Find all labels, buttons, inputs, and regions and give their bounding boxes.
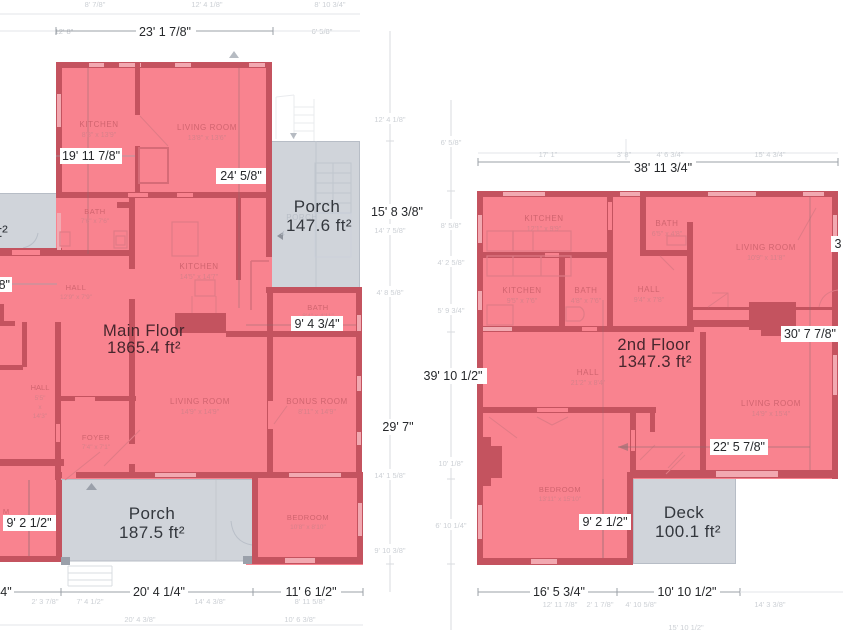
svg-text:14' 3 3/8": 14' 3 3/8" xyxy=(754,600,786,609)
svg-text:14' 7 5/8": 14' 7 5/8" xyxy=(374,226,406,235)
svg-text:9' 10 3/8": 9' 10 3/8" xyxy=(374,546,406,555)
svg-text:5'5": 5'5" xyxy=(35,395,46,402)
svg-text:BATH: BATH xyxy=(655,219,678,228)
svg-text:8' 5/8": 8' 5/8" xyxy=(441,221,462,230)
svg-text:24' 5/8": 24' 5/8" xyxy=(220,169,262,183)
svg-text:12' 11 7/8": 12' 11 7/8" xyxy=(543,600,578,609)
svg-text:BONUS ROOM: BONUS ROOM xyxy=(286,397,348,406)
svg-text:10' 1/8": 10' 1/8" xyxy=(439,459,464,468)
svg-text:4": 4" xyxy=(0,585,11,599)
svg-text:10'8" x 8'10": 10'8" x 8'10" xyxy=(290,524,326,531)
svg-text:BATH: BATH xyxy=(307,303,328,312)
svg-text:13'11" x 15'10": 13'11" x 15'10" xyxy=(539,496,582,503)
svg-text:KITCHEN: KITCHEN xyxy=(79,120,118,129)
svg-text:15' 8 3/8": 15' 8 3/8" xyxy=(371,205,423,219)
svg-text:20' 4 3/8": 20' 4 3/8" xyxy=(124,615,156,624)
svg-text:29' 7": 29' 7" xyxy=(382,420,413,434)
svg-text:3' 8": 3' 8" xyxy=(617,150,632,159)
svg-text:3: 3 xyxy=(835,237,842,251)
svg-text:13'8" x 13'6": 13'8" x 13'6" xyxy=(188,135,227,142)
svg-text:15' 10 1/2": 15' 10 1/2" xyxy=(668,623,704,632)
svg-text:6' 10 1/4": 6' 10 1/4" xyxy=(435,521,467,530)
svg-text:10'9" x 11'8": 10'9" x 11'8" xyxy=(747,255,785,262)
svg-text:KITCHEN: KITCHEN xyxy=(179,262,218,271)
svg-text:Porch: Porch xyxy=(129,504,175,523)
svg-text:12' 4 1/8": 12' 4 1/8" xyxy=(191,0,223,9)
svg-text:HALL: HALL xyxy=(638,285,660,294)
svg-text:5' 9 3/4": 5' 9 3/4" xyxy=(437,306,464,315)
svg-text:7'4" x 7'1": 7'4" x 7'1" xyxy=(82,444,111,451)
svg-text:16' 5 3/4": 16' 5 3/4" xyxy=(533,585,585,599)
svg-text:KITCHEN: KITCHEN xyxy=(502,286,541,295)
svg-text:7' 4 1/2": 7' 4 1/2" xyxy=(76,597,103,606)
svg-text:14'5" x 14'7": 14'5" x 14'7" xyxy=(180,274,219,281)
svg-text:4' 2 5/8": 4' 2 5/8" xyxy=(437,258,464,267)
svg-text:8' 11 5/8": 8' 11 5/8" xyxy=(295,597,326,606)
svg-text:14' 4 3/8": 14' 4 3/8" xyxy=(194,597,226,606)
svg-text:6' 5/8": 6' 5/8" xyxy=(441,138,462,147)
svg-text:8'8" x 13'9": 8'8" x 13'9" xyxy=(82,132,117,139)
svg-text:8' 10 3/4": 8' 10 3/4" xyxy=(314,0,346,9)
svg-text:LIVING ROOM: LIVING ROOM xyxy=(170,397,230,406)
svg-text:FOYER: FOYER xyxy=(82,433,110,442)
svg-text:2' 1 7/8": 2' 1 7/8" xyxy=(586,600,613,609)
svg-text:1347.3 ft²: 1347.3 ft² xyxy=(618,353,692,371)
svg-text:4'8" x 7'6": 4'8" x 7'6" xyxy=(571,298,602,305)
svg-text:4' 6 3/4": 4' 6 3/4" xyxy=(656,150,683,159)
svg-text:187.5 ft²: 187.5 ft² xyxy=(119,523,185,542)
svg-text:6'5" x 4'8": 6'5" x 4'8" xyxy=(652,231,683,238)
svg-text:BATH: BATH xyxy=(574,286,597,295)
svg-text:14'9" x 14'9": 14'9" x 14'9" xyxy=(181,409,220,416)
svg-text:Deck: Deck xyxy=(664,503,704,522)
svg-text:15' 4 3/4": 15' 4 3/4" xyxy=(754,150,786,159)
svg-text:KITCHEN: KITCHEN xyxy=(524,214,563,223)
svg-text:100.1 ft²: 100.1 ft² xyxy=(655,522,721,541)
svg-text:2nd Floor: 2nd Floor xyxy=(617,336,690,354)
svg-text:2' 3 7/8": 2' 3 7/8" xyxy=(31,597,58,606)
svg-text:8' 7/8": 8' 7/8" xyxy=(85,0,106,9)
svg-text:9'5" x 7'6": 9'5" x 7'6" xyxy=(507,298,538,305)
svg-text:9' 2 1/2": 9' 2 1/2" xyxy=(582,515,627,529)
svg-text:t²: t² xyxy=(0,222,8,241)
svg-text:7'6" x 7'6": 7'6" x 7'6" xyxy=(81,218,110,225)
svg-text:LIVING ROOM: LIVING ROOM xyxy=(177,123,237,132)
svg-text:Main Floor: Main Floor xyxy=(103,322,185,340)
svg-text:30' 7 7/8": 30' 7 7/8" xyxy=(784,327,836,341)
svg-text:M: M xyxy=(3,507,9,516)
svg-text:4' 10 5/8": 4' 10 5/8" xyxy=(625,600,657,609)
svg-text:LIVING ROOM: LIVING ROOM xyxy=(736,243,796,252)
svg-text:Porch: Porch xyxy=(294,197,340,216)
svg-text:19' 11 7/8": 19' 11 7/8" xyxy=(62,149,120,163)
svg-text:9' 2 1/2": 9' 2 1/2" xyxy=(6,516,51,530)
svg-text:20' 4 1/4": 20' 4 1/4" xyxy=(133,585,185,599)
svg-text:38' 11 3/4": 38' 11 3/4" xyxy=(634,161,692,175)
svg-text:12'9" x 7'9": 12'9" x 7'9" xyxy=(60,294,93,301)
svg-text:BATH: BATH xyxy=(84,207,105,216)
svg-text:10' 10 1/2": 10' 10 1/2" xyxy=(658,585,717,599)
svg-text:14'9" x 15'4": 14'9" x 15'4" xyxy=(752,411,791,418)
svg-text:147.6 ft²: 147.6 ft² xyxy=(286,216,352,235)
svg-text:HALL: HALL xyxy=(577,368,599,377)
svg-text:39' 10 1/2": 39' 10 1/2" xyxy=(424,369,483,383)
svg-text:4: 4 xyxy=(281,231,285,238)
svg-text:HALL: HALL xyxy=(31,383,50,392)
svg-text:BEDROOM: BEDROOM xyxy=(287,513,329,522)
svg-text:8": 8" xyxy=(0,278,10,292)
svg-text:23' 1 7/8": 23' 1 7/8" xyxy=(139,25,191,39)
svg-text:4' 8 5/8": 4' 8 5/8" xyxy=(376,288,403,297)
svg-text:21'2" x 8'4": 21'2" x 8'4" xyxy=(571,380,606,387)
svg-text:BEDROOM: BEDROOM xyxy=(539,485,581,494)
svg-text:10' 6 3/8": 10' 6 3/8" xyxy=(284,615,316,624)
svg-text:1865.4 ft²: 1865.4 ft² xyxy=(107,339,181,357)
svg-text:12'1" x 9'9": 12'1" x 9'9" xyxy=(527,226,562,233)
svg-text:LIVING ROOM: LIVING ROOM xyxy=(741,399,801,408)
svg-text:HALL: HALL xyxy=(66,283,87,292)
svg-text:17' 1": 17' 1" xyxy=(539,150,558,159)
svg-text:12' 4 1/8": 12' 4 1/8" xyxy=(374,115,406,124)
svg-text:9' 4 3/4": 9' 4 3/4" xyxy=(294,317,339,331)
svg-text:8'11" x 14'9": 8'11" x 14'9" xyxy=(298,409,336,416)
svg-text:22' 5 7/8": 22' 5 7/8" xyxy=(713,440,765,454)
svg-text:14' 1 5/8": 14' 1 5/8" xyxy=(374,471,406,480)
svg-text:9'4" x 7'8": 9'4" x 7'8" xyxy=(634,297,665,304)
svg-text:14'3": 14'3" xyxy=(33,413,48,420)
